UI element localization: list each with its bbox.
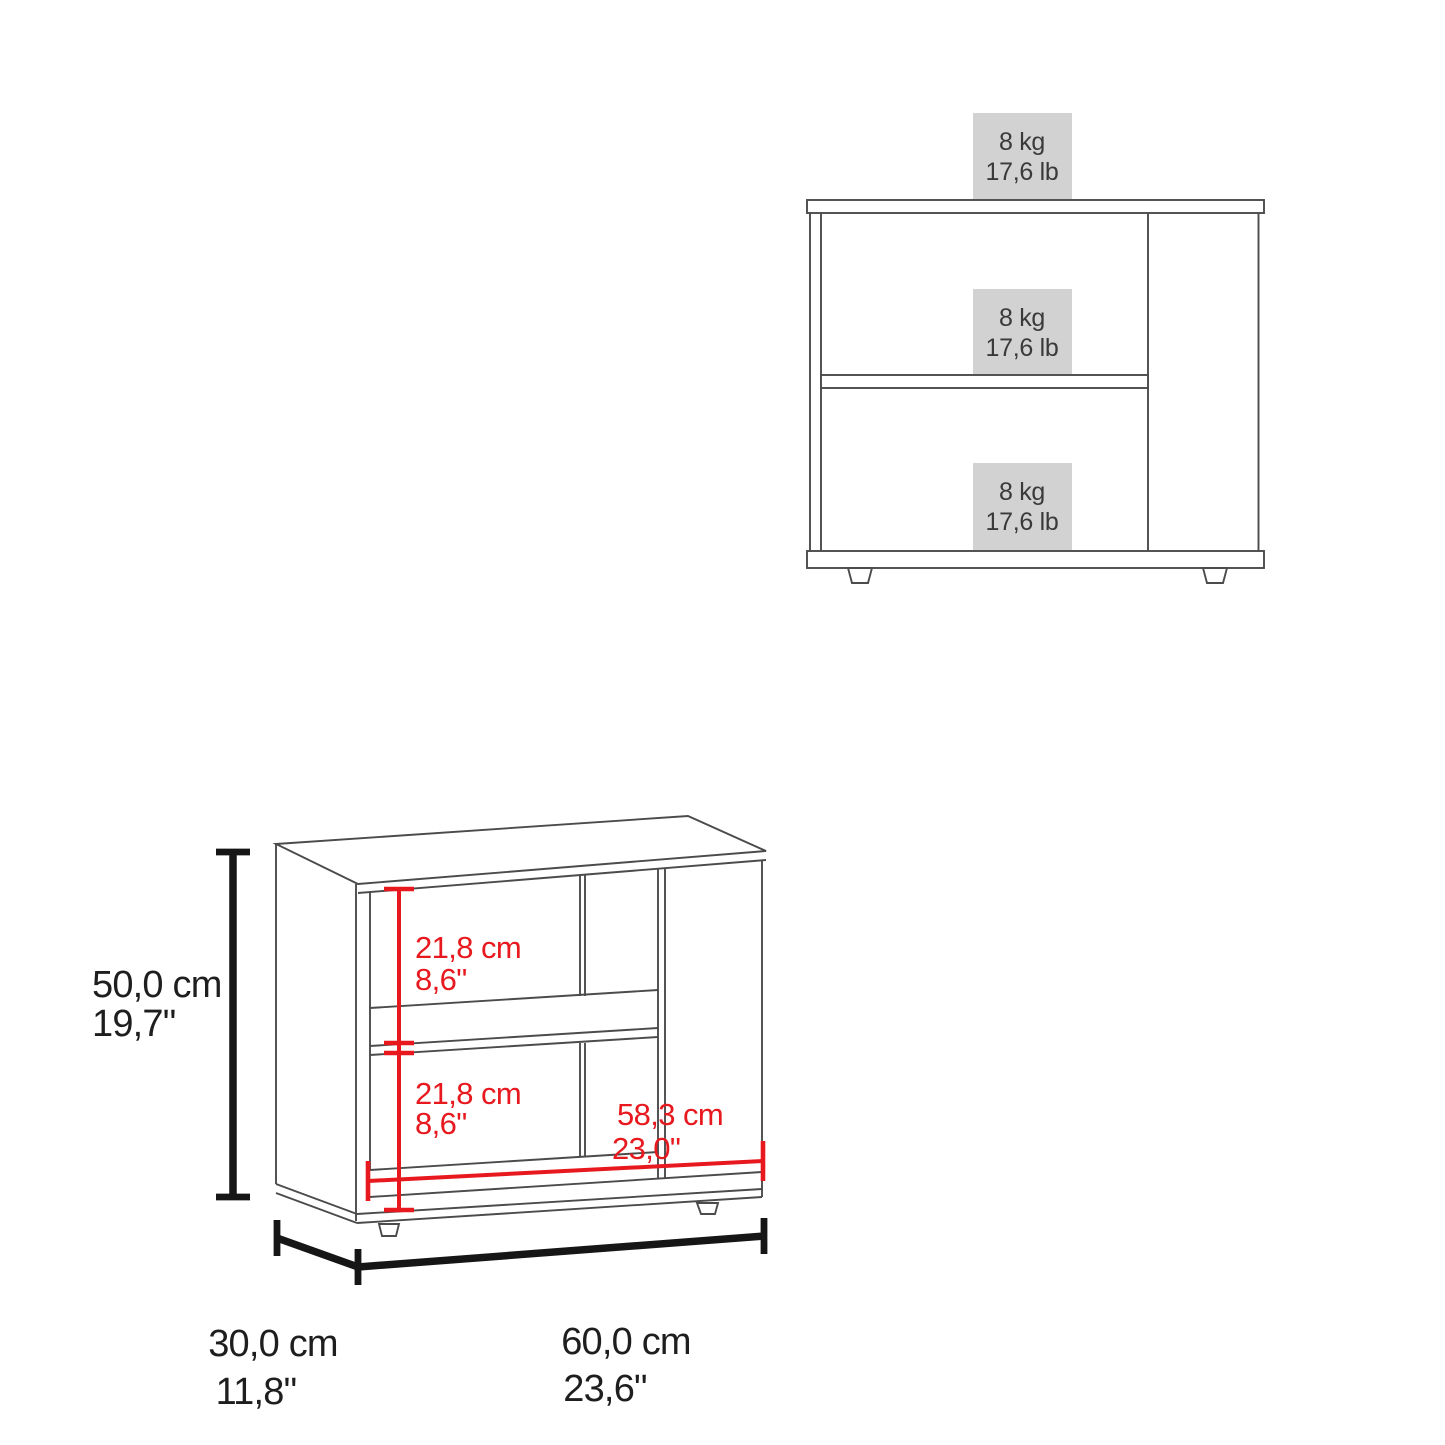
weight-kg-label: 8 kg — [999, 478, 1045, 506]
width-in-label: 23,6" — [563, 1368, 646, 1410]
furniture-dimension-sheet: 8 kg 17,6 lb 8 kg 17,6 lb 8 kg 17,6 lb — [0, 0, 1445, 1445]
weight-label-top: 8 kg 17,6 lb — [973, 113, 1072, 200]
lower-space-in-label: 8,6" — [415, 1106, 467, 1141]
weight-label-bottom: 8 kg 17,6 lb — [973, 463, 1072, 551]
bottom-board — [807, 551, 1264, 568]
top-face — [276, 816, 766, 884]
weight-label-bg — [973, 289, 1072, 376]
plinth-left-bottom-edge — [276, 1193, 357, 1223]
interior-width-line — [368, 1161, 763, 1181]
top-board — [807, 200, 1264, 213]
shelf-back-edge — [370, 990, 658, 1008]
height-in-label: 19,7" — [92, 1003, 175, 1045]
middle-shelf — [821, 375, 1148, 388]
width-dimension-line — [358, 1236, 764, 1267]
width-cm-label: 60,0 cm — [561, 1321, 691, 1363]
height-cm-label: 50,0 cm — [92, 964, 222, 1006]
weight-label-middle: 8 kg 17,6 lb — [973, 289, 1072, 376]
depth-cm-label: 30,0 cm — [208, 1323, 338, 1365]
interior-dimension-labels: 21,8 cm 8,6" 21,8 cm 8,6" 58,3 cm 23,0" — [415, 930, 723, 1166]
weight-lb-label: 17,6 lb — [986, 334, 1059, 362]
left-foot — [379, 1224, 399, 1236]
diagram-canvas: 8 kg 17,6 lb 8 kg 17,6 lb 8 kg 17,6 lb — [0, 0, 1445, 1445]
perspective-view-diagram: 21,8 cm 8,6" 21,8 cm 8,6" 58,3 cm 23,0" … — [92, 816, 766, 1413]
right-foot — [1203, 568, 1227, 583]
weight-kg-label: 8 kg — [999, 304, 1045, 332]
inner-width-cm-label: 58,3 cm — [617, 1097, 723, 1132]
left-foot — [848, 568, 872, 583]
inner-width-in-label: 23,0" — [612, 1131, 680, 1166]
weight-label-bg — [973, 113, 1072, 200]
upper-space-cm-label: 21,8 cm — [415, 930, 521, 965]
weight-kg-label: 8 kg — [999, 128, 1045, 156]
depth-dimension-line — [277, 1238, 358, 1267]
plinth-left-top-edge — [276, 1184, 357, 1214]
weight-lb-label: 17,6 lb — [986, 508, 1059, 536]
depth-in-label: 11,8" — [216, 1371, 297, 1413]
front-view-diagram: 8 kg 17,6 lb 8 kg 17,6 lb 8 kg 17,6 lb — [807, 113, 1264, 583]
outer-dimension-lines — [216, 852, 764, 1285]
right-foot — [697, 1203, 718, 1214]
weight-label-bg — [973, 463, 1072, 551]
upper-space-in-label: 8,6" — [415, 962, 467, 997]
weight-lb-label: 17,6 lb — [986, 158, 1059, 186]
